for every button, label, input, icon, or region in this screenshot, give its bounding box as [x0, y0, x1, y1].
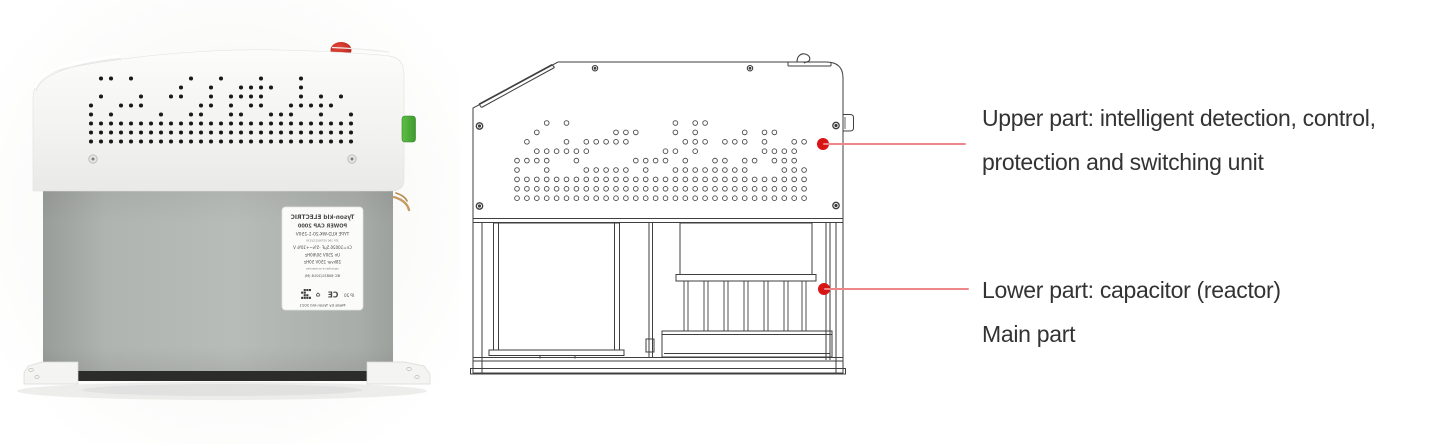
svg-text:Tyson-kld ELECTRIC: Tyson-kld ELECTRIC	[291, 215, 355, 221]
svg-text:IP 20: IP 20	[344, 293, 354, 298]
base-gap-strip	[76, 371, 369, 381]
left-foot	[24, 362, 78, 384]
technical-drawing	[455, 40, 865, 385]
svg-text:capacitance accessories: capacitance accessories	[306, 267, 339, 271]
upper-annotation-line1: Upper part: intelligent detection, contr…	[982, 96, 1376, 140]
svg-text:IEC 60831/2016 (M): IEC 60831/2016 (M)	[304, 274, 340, 278]
ground-shadow	[17, 382, 427, 400]
lower-annotation-line1: Lower part: capacitor (reactor)	[982, 268, 1281, 312]
upper-callout-line	[823, 143, 966, 146]
svg-text:POWER CAP 2000: POWER CAP 2000	[297, 224, 347, 230]
lower-part-annotation: Lower part: capacitor (reactor) Main par…	[982, 268, 1281, 356]
lower-callout-line	[824, 288, 969, 291]
side-connector	[843, 115, 854, 132]
svg-text:Un 250V 50/60Hz: Un 250V 50/60Hz	[305, 253, 340, 258]
svg-text:Cn=10026.5µF -5%~+10% V: Cn=10026.5µF -5%~+10% V	[293, 245, 352, 250]
lower-annotation-line2: Main part	[982, 312, 1281, 356]
svg-text:♻: ♻	[315, 292, 320, 299]
upper-part-annotation: Upper part: intelligent detection, contr…	[982, 96, 1376, 184]
right-foot	[367, 362, 430, 384]
svg-text:Made by Tyson-kld 2021: Made by Tyson-kld 2021	[299, 303, 346, 308]
housing	[33, 48, 404, 192]
upper-annotation-line2: protection and switching unit	[982, 140, 1376, 184]
svg-text:28kvar 250V 50Hz: 28kvar 250V 50Hz	[304, 260, 341, 265]
svg-text:3TA 190 03790/123/139: 3TA 190 03790/123/139	[306, 239, 339, 243]
wire	[394, 193, 409, 210]
green-connector	[402, 116, 416, 142]
nameplate-label: Tyson-kld ELECTRICPOWER CAP 2000TYPE KLD…	[282, 207, 363, 310]
drawing-outline	[473, 62, 843, 373]
page: Tyson-kld ELECTRICPOWER CAP 2000TYPE KLD…	[0, 0, 1445, 444]
product-photo: Tyson-kld ELECTRICPOWER CAP 2000TYPE KLD…	[0, 0, 455, 444]
svg-text:TYPE KLD-WK-20-1-250V: TYPE KLD-WK-20-1-250V	[296, 232, 351, 238]
svg-text:CE: CE	[328, 291, 339, 300]
